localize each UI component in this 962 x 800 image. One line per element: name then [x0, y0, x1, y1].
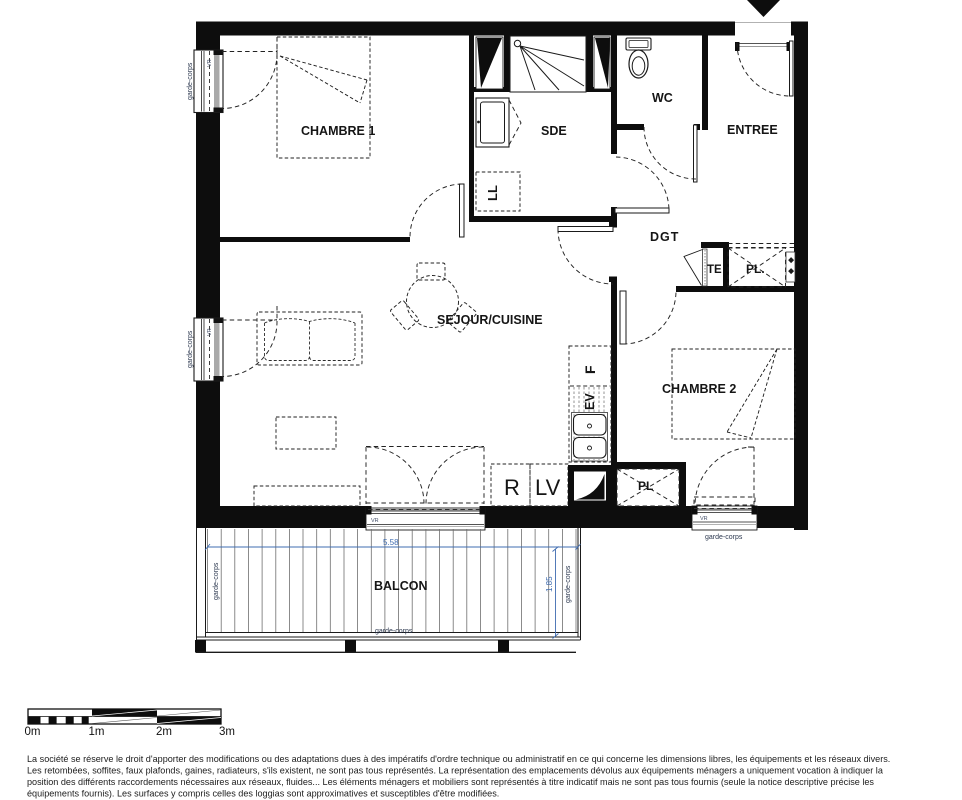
svg-text:garde-corps: garde-corps: [213, 562, 220, 600]
svg-text:BALCON: BALCON: [374, 579, 427, 593]
svg-text:garde-corps: garde-corps: [565, 565, 572, 603]
svg-text:équipements fournis). Les surf: équipements fournis). Les surfaces y com…: [27, 789, 499, 799]
svg-text:LL: LL: [485, 185, 500, 201]
svg-text:Les retombées, soffites, faux: Les retombées, soffites, faux plafonds, …: [27, 766, 884, 776]
svg-text:WC: WC: [652, 91, 673, 105]
svg-text:R: R: [504, 475, 520, 500]
svg-text:VR: VR: [371, 518, 379, 524]
svg-text:PL: PL: [638, 479, 653, 493]
svg-text:position des différents raccor: position des différents raccordements né…: [27, 777, 874, 787]
svg-text:LV: LV: [535, 475, 561, 500]
svg-text:VR: VR: [700, 516, 708, 522]
svg-text:La société se réserve le droit: La société se réserve le droit d'apporte…: [27, 754, 890, 764]
svg-text:2m: 2m: [156, 726, 172, 738]
svg-text:VR: VR: [207, 328, 213, 336]
svg-text:5.58: 5.58: [383, 538, 399, 547]
svg-text:garde-corps: garde-corps: [187, 330, 194, 368]
svg-text:SDE: SDE: [541, 124, 567, 138]
svg-text:EV: EV: [583, 393, 597, 410]
svg-text:CHAMBRE 2: CHAMBRE 2: [662, 382, 736, 396]
svg-text:ENTREE: ENTREE: [727, 123, 778, 137]
svg-text:F: F: [582, 365, 598, 374]
svg-text:CHAMBRE 1: CHAMBRE 1: [301, 124, 375, 138]
svg-text:1m: 1m: [89, 726, 105, 738]
svg-text:garde-corps: garde-corps: [375, 628, 413, 635]
svg-text:garde-corps: garde-corps: [187, 62, 194, 100]
svg-text:TE: TE: [707, 264, 722, 276]
svg-text:garde-corps: garde-corps: [705, 534, 743, 541]
svg-text:VR: VR: [207, 59, 213, 67]
svg-text:0m: 0m: [25, 726, 41, 738]
svg-text:DGT: DGT: [650, 230, 679, 244]
svg-text:1.85: 1.85: [545, 576, 554, 592]
svg-text:3m: 3m: [219, 726, 235, 738]
svg-text:PL.: PL.: [746, 262, 765, 276]
